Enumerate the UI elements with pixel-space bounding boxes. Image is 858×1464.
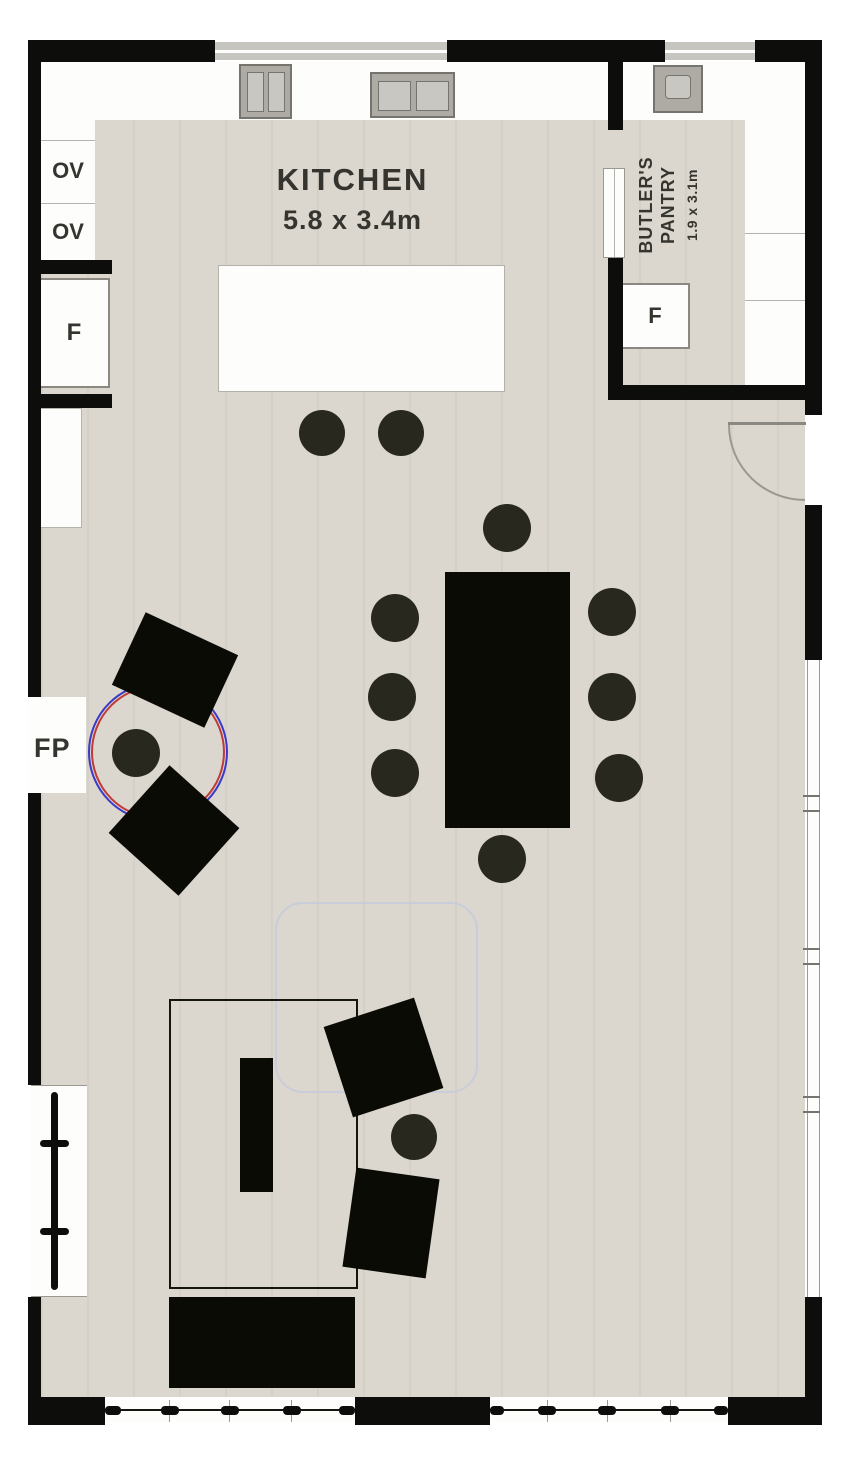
dining-chair <box>368 673 416 721</box>
window-right <box>807 660 820 1297</box>
window-tick <box>803 963 820 965</box>
window-bottom-right <box>490 1400 728 1422</box>
media-unit <box>169 1297 355 1388</box>
window-top-pantry <box>665 42 755 60</box>
window-tick <box>803 810 820 812</box>
wall-segment <box>805 505 822 660</box>
window-tick <box>40 1140 69 1147</box>
floor-plan: OV OV F F FP <box>0 0 858 1464</box>
lounge-chair <box>342 1168 439 1279</box>
window-mullion <box>51 1092 58 1290</box>
window-bottom-left <box>105 1400 355 1422</box>
cabinet-divider-line <box>41 203 95 204</box>
dining-chair <box>371 594 419 642</box>
dining-chair <box>371 749 419 797</box>
dining-table <box>445 572 570 828</box>
wall-segment <box>28 793 41 1085</box>
fridge-kitchen: F <box>38 278 110 388</box>
fridge-pantry-label: F <box>648 303 661 329</box>
pantry-name: BUTLER'S PANTRY <box>636 155 679 255</box>
window-tick <box>803 795 820 797</box>
kitchen-name: KITCHEN <box>230 162 475 198</box>
dining-chair <box>478 835 526 883</box>
cooktop-icon <box>239 64 292 119</box>
wall-segment <box>28 1397 105 1425</box>
window-tick <box>803 1096 820 1098</box>
pantry-bottom-wall <box>608 385 822 400</box>
pantry-dimensions: 1.9 x 3.1m <box>684 169 700 241</box>
kitchen-top-counter <box>41 62 610 120</box>
pantry-shelf-line <box>745 300 805 301</box>
wall-segment <box>355 1397 490 1425</box>
dining-chair <box>588 673 636 721</box>
wall-segment <box>28 40 41 697</box>
dining-chair <box>588 588 636 636</box>
pantry-side-counter <box>745 62 805 385</box>
island-counter <box>218 265 505 392</box>
bar-stool <box>378 410 424 456</box>
fireplace-side-table <box>112 729 160 777</box>
window-tick <box>803 948 820 950</box>
cabinet-divider-line <box>41 140 95 141</box>
wall-return <box>28 260 112 274</box>
wall-return <box>28 394 112 408</box>
window-left <box>31 1085 87 1297</box>
wall-segment <box>805 40 822 415</box>
window-tick <box>803 1111 820 1113</box>
wall-segment <box>447 40 665 62</box>
sink-icon <box>370 72 455 118</box>
pantry-label: BUTLER'S PANTRY 1.9 x 3.1m <box>613 105 723 305</box>
dining-chair <box>595 754 643 802</box>
lounge-side-table <box>391 1114 437 1160</box>
oven-label-top: OV <box>41 158 95 184</box>
fridge-kitchen-label: F <box>67 319 82 347</box>
kitchen-dimensions: 5.8 x 3.4m <box>230 205 475 236</box>
fireplace-label: FP <box>34 733 71 764</box>
window-tick <box>40 1228 69 1235</box>
pantry-shelf-line <box>745 233 805 234</box>
wall-segment <box>28 40 215 62</box>
oven-label-bottom: OV <box>41 219 95 245</box>
kitchen-label: KITCHEN 5.8 x 3.4m <box>230 162 475 236</box>
window-top-kitchen <box>215 42 447 60</box>
wall-segment <box>728 1397 822 1425</box>
bar-stool <box>299 410 345 456</box>
dining-chair <box>483 504 531 552</box>
coffee-table <box>240 1058 273 1192</box>
